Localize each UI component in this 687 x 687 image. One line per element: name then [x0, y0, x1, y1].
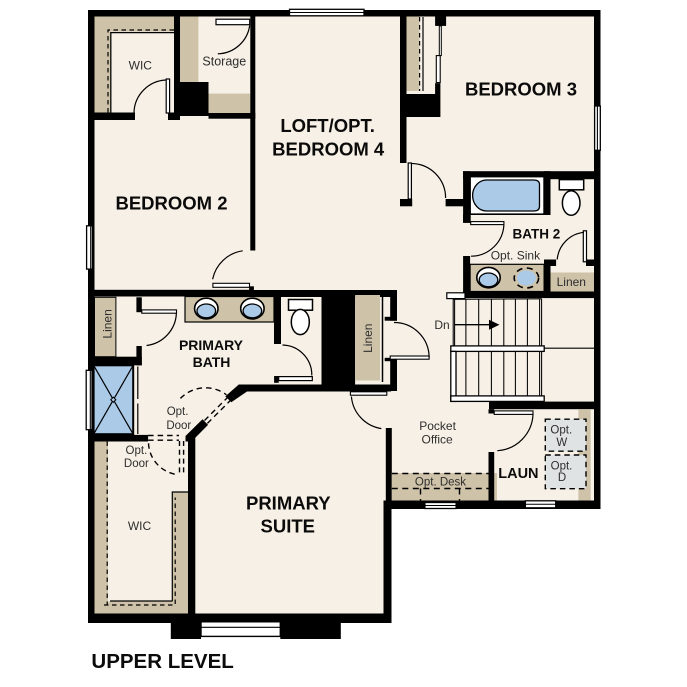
svg-text:Opt.: Opt.: [167, 406, 189, 418]
svg-text:LAUN: LAUN: [498, 466, 538, 482]
svg-text:BEDROOM 2: BEDROOM 2: [115, 192, 227, 213]
svg-text:Opt.: Opt.: [550, 425, 572, 437]
svg-text:BEDROOM 3: BEDROOM 3: [465, 78, 577, 99]
svg-text:Office: Office: [422, 433, 453, 447]
svg-text:Dn: Dn: [434, 318, 449, 332]
svg-text:UPPER LEVEL: UPPER LEVEL: [91, 650, 233, 673]
svg-text:W: W: [556, 437, 567, 449]
svg-text:Door: Door: [166, 420, 191, 432]
svg-text:Opt.: Opt.: [126, 445, 148, 457]
svg-text:Linen: Linen: [100, 309, 114, 338]
svg-text:Pocket: Pocket: [419, 419, 456, 433]
svg-text:WIC: WIC: [129, 59, 153, 73]
svg-text:Linen: Linen: [361, 324, 375, 353]
svg-text:BATH: BATH: [193, 354, 231, 370]
svg-text:Storage: Storage: [202, 55, 246, 69]
svg-text:Opt.: Opt.: [551, 461, 573, 473]
svg-text:SUITE: SUITE: [261, 515, 315, 536]
svg-text:BATH 2: BATH 2: [513, 227, 561, 242]
svg-text:D: D: [558, 472, 566, 484]
svg-text:Door: Door: [124, 458, 149, 470]
svg-text:BEDROOM 4: BEDROOM 4: [272, 138, 385, 159]
svg-text:PRIMARY: PRIMARY: [246, 493, 331, 514]
svg-text:LOFT/OPT.: LOFT/OPT.: [280, 115, 375, 136]
svg-text:Opt. Sink: Opt. Sink: [491, 249, 541, 263]
svg-text:Linen: Linen: [557, 275, 586, 289]
svg-text:PRIMARY: PRIMARY: [179, 337, 244, 353]
svg-text:Opt. Desk: Opt. Desk: [415, 477, 466, 489]
svg-text:WIC: WIC: [128, 519, 152, 533]
